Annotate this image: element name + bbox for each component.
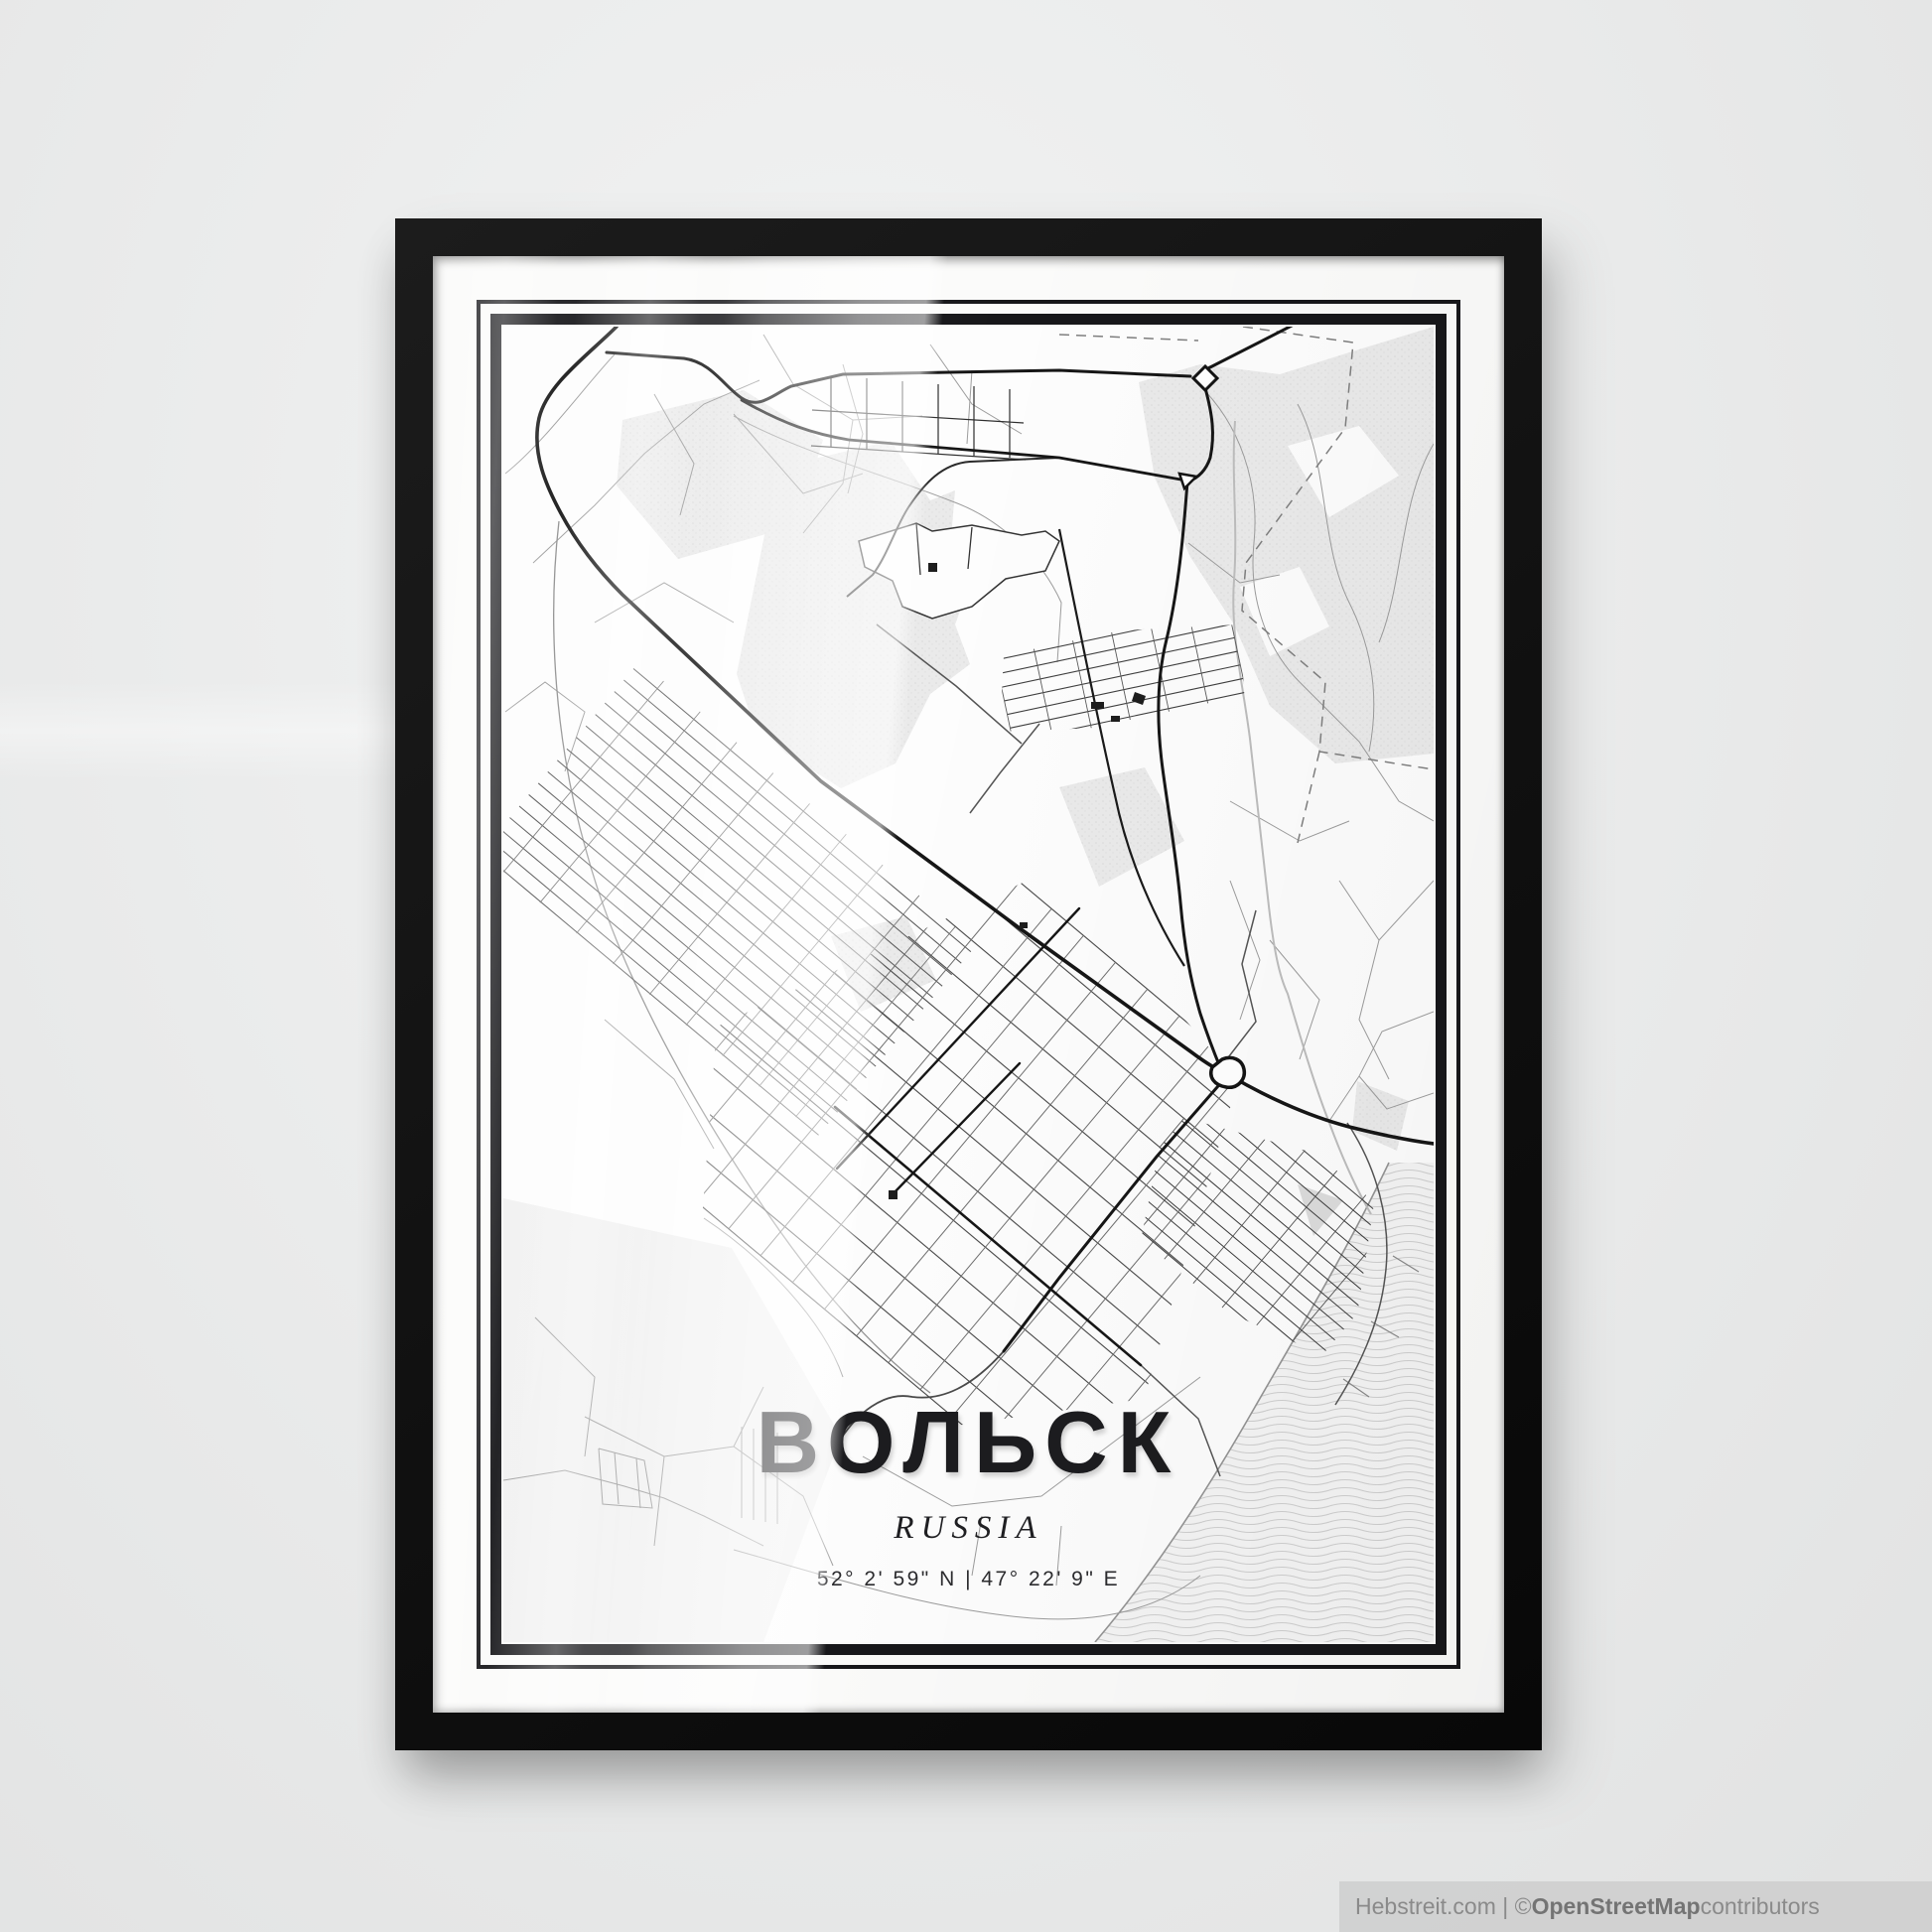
wall: ВОЛЬСК RUSSIA 52° 2' 59" N | 47° 22' 9" … xyxy=(0,0,1932,1932)
attribution-brand: OpenStreetMap xyxy=(1532,1893,1701,1920)
mat-board: ВОЛЬСК RUSSIA 52° 2' 59" N | 47° 22' 9" … xyxy=(433,256,1504,1713)
attribution-bar: Hebstreit.com | © OpenStreetMap contribu… xyxy=(1339,1881,1932,1932)
attribution-suffix: contributors xyxy=(1701,1893,1820,1920)
attribution-prefix: Hebstreit.com | © xyxy=(1355,1893,1532,1920)
wall-light-stripe xyxy=(0,681,401,780)
poster-frame: ВОЛЬСК RUSSIA 52° 2' 59" N | 47° 22' 9" … xyxy=(395,218,1542,1750)
inner-border-thick xyxy=(490,314,1447,1655)
